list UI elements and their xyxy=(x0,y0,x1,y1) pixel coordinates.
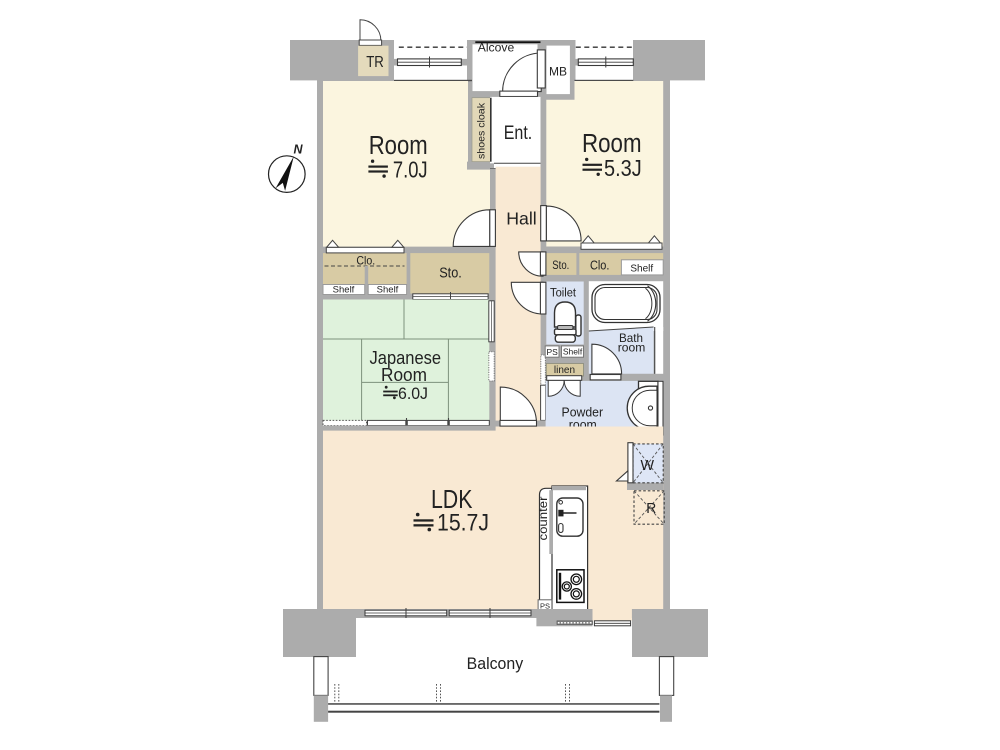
svg-text:PS: PS xyxy=(540,601,550,610)
svg-text:Sto.: Sto. xyxy=(439,266,462,282)
svg-text:Shelf: Shelf xyxy=(630,263,653,274)
svg-text:Clo.: Clo. xyxy=(356,253,375,267)
svg-text:Room: Room xyxy=(381,365,427,385)
svg-text:N: N xyxy=(293,143,303,157)
svg-text:Clo.: Clo. xyxy=(590,259,610,273)
svg-text:7.0J: 7.0J xyxy=(393,157,428,183)
svg-text:PS: PS xyxy=(547,347,559,357)
svg-text:room: room xyxy=(618,341,646,355)
svg-text:Shelf: Shelf xyxy=(377,285,399,296)
svg-text:shoes cloak: shoes cloak xyxy=(476,102,488,159)
svg-text:Balcony: Balcony xyxy=(467,654,524,673)
svg-text:MB: MB xyxy=(549,65,567,79)
svg-text:W: W xyxy=(640,458,654,474)
svg-text:5.3J: 5.3J xyxy=(604,155,642,181)
svg-text:6.0J: 6.0J xyxy=(398,384,428,403)
svg-text:Hall: Hall xyxy=(506,209,537,229)
svg-text:linen: linen xyxy=(554,365,575,376)
svg-text:TR: TR xyxy=(366,54,384,71)
svg-text:Alcove: Alcove xyxy=(478,43,515,55)
svg-text:Ent.: Ent. xyxy=(504,123,533,144)
svg-text:R: R xyxy=(646,500,656,517)
svg-text:Toilet: Toilet xyxy=(550,287,577,299)
svg-text:Shelf: Shelf xyxy=(333,285,355,296)
svg-text:counter: counter xyxy=(538,496,550,540)
svg-text:Sto.: Sto. xyxy=(552,258,569,272)
svg-text:Shelf: Shelf xyxy=(563,347,583,357)
svg-text:Room: Room xyxy=(582,130,642,158)
svg-text:15.7J: 15.7J xyxy=(437,510,489,537)
